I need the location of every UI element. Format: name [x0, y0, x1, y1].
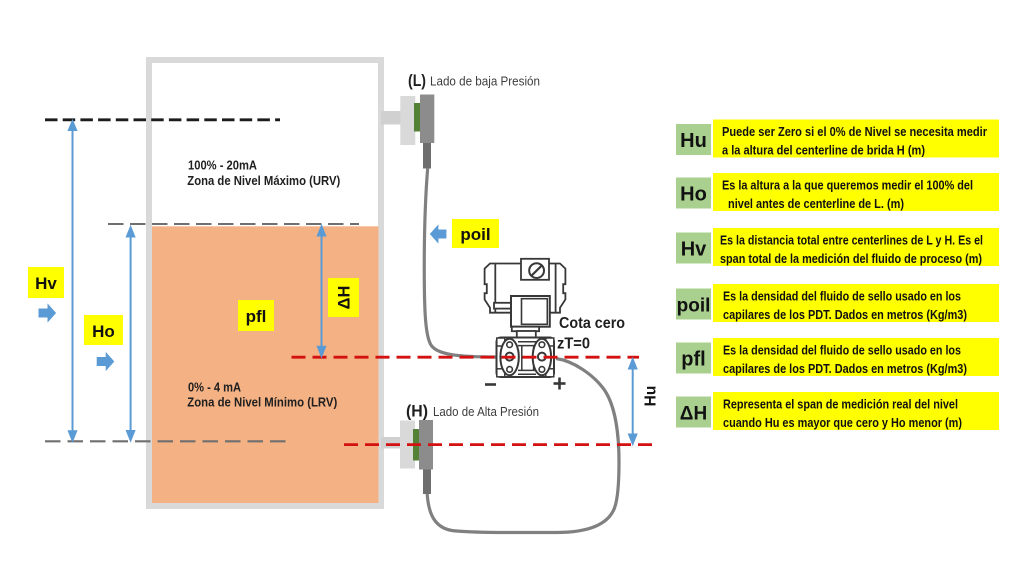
svg-text:span total de la medición del: span total de la medición del fluido de … [720, 252, 982, 266]
svg-text:(L): (L) [408, 71, 426, 90]
svg-text:pfl: pfl [246, 307, 267, 326]
svg-text:ΔH: ΔH [680, 404, 707, 425]
svg-text:ΔH: ΔH [336, 286, 354, 310]
svg-text:Es la altura a la que queremos: Es la altura a la que queremos medir el … [722, 179, 973, 193]
svg-text:Ho: Ho [680, 184, 707, 206]
svg-text:poil: poil [677, 296, 711, 317]
svg-text:capilares de los PDT. Dados en: capilares de los PDT. Dados en metros (K… [723, 308, 967, 322]
svg-text:zT=0: zT=0 [557, 336, 590, 353]
svg-text:Hv: Hv [681, 239, 707, 261]
svg-text:Zona de Nivel Mínimo (LRV): Zona de Nivel Mínimo (LRV) [187, 396, 337, 410]
svg-text:nivel antes de centerline de L: nivel antes de centerline de L. (m) [728, 197, 904, 211]
svg-text:Lado de Alta Presión: Lado de Alta Presión [433, 404, 539, 419]
svg-text:100% - 20mA: 100% - 20mA [188, 159, 257, 173]
svg-text:Ho: Ho [92, 322, 115, 341]
svg-text:0% - 4 mA: 0% - 4 mA [188, 381, 241, 395]
svg-text:Es la densidad del fluido de s: Es la densidad del fluido de sello usado… [723, 344, 961, 358]
svg-text:poil: poil [460, 225, 490, 244]
svg-text:Zona de Nivel Máximo (URV): Zona de Nivel Máximo (URV) [187, 174, 340, 188]
svg-text:Puede ser Zero si el 0% de N: Puede ser Zero si el 0% de Nivel se nece… [722, 125, 987, 139]
svg-text:Hv: Hv [35, 274, 57, 293]
svg-text:a la altura del centerline de: a la altura del centerline de brida H (m… [722, 144, 925, 158]
svg-text:(H): (H) [406, 402, 428, 421]
svg-text:cuando Hu es mayor que cero y: cuando Hu es mayor que cero y Ho menor (… [723, 416, 962, 430]
svg-text:pfl: pfl [681, 349, 705, 371]
svg-text:Hu: Hu [680, 130, 707, 152]
svg-text:Representa el span de medición: Representa el span de medición real del … [723, 398, 958, 412]
svg-text:Hu: Hu [643, 386, 660, 407]
svg-text:Lado de baja Presión: Lado de baja Presión [430, 74, 540, 89]
svg-text:Es la densidad del fluido de s: Es la densidad del fluido de sello usado… [723, 290, 961, 304]
svg-text:Cota cero: Cota cero [559, 315, 625, 332]
svg-text:Es la distancia total entre ce: Es la distancia total entre centerlines … [720, 234, 983, 248]
svg-text:capilares de los PDT. Dados en: capilares de los PDT. Dados en metros (K… [723, 362, 967, 376]
